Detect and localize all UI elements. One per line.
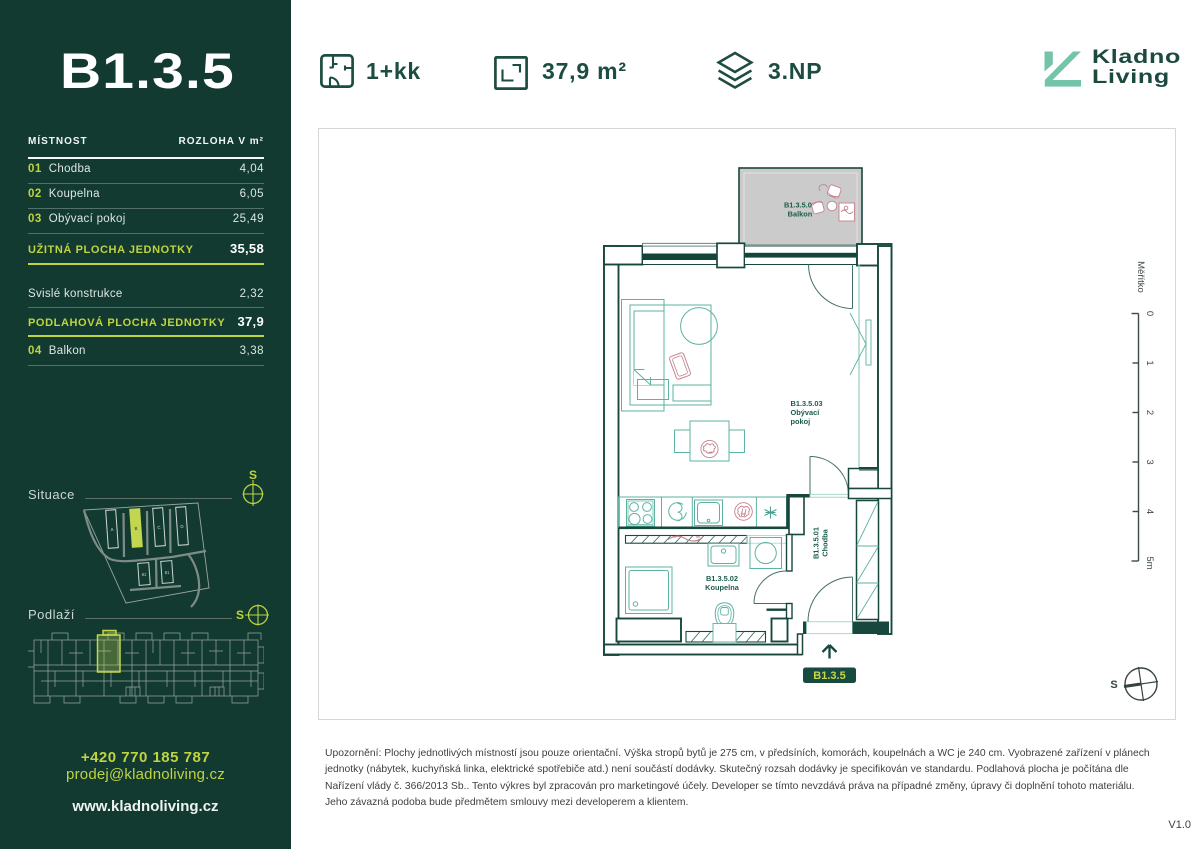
svg-text:pokoj: pokoj xyxy=(791,417,811,426)
svg-text:Měřítko: Měřítko xyxy=(1135,261,1146,293)
svg-text:Balkon: Balkon xyxy=(788,210,813,219)
svg-text:0: 0 xyxy=(1144,311,1155,316)
svg-text:3: 3 xyxy=(1144,459,1155,464)
svg-text:Koupelna: Koupelna xyxy=(705,583,740,592)
svg-text:B1.3.5: B1.3.5 xyxy=(813,670,845,682)
svg-text:5m: 5m xyxy=(1144,556,1155,569)
svg-text:B1.3.5.02: B1.3.5.02 xyxy=(706,574,738,583)
svg-text:1: 1 xyxy=(1144,360,1155,365)
svg-text:B1.3.5.01: B1.3.5.01 xyxy=(812,527,821,559)
svg-text:B1.3.5.03: B1.3.5.03 xyxy=(791,399,823,408)
svg-text:2: 2 xyxy=(1144,410,1155,415)
svg-text:Obývací: Obývací xyxy=(791,408,821,417)
svg-text:4: 4 xyxy=(1144,509,1155,514)
svg-text:Chodba: Chodba xyxy=(821,528,830,556)
svg-text:S: S xyxy=(1110,679,1117,691)
